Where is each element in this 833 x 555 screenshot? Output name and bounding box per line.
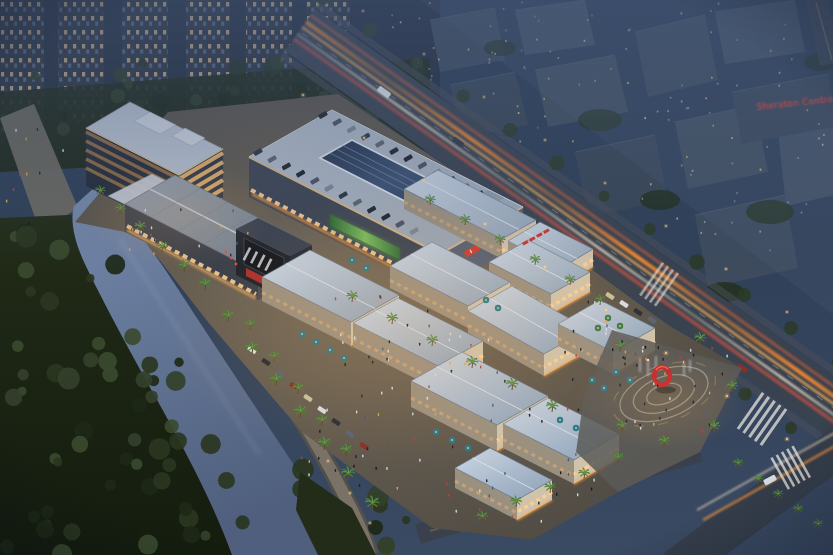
rendering-canvas: Sheraton Centre: [0, 0, 833, 555]
vignette: [0, 0, 833, 555]
scene-rendering: Sheraton Centre: [0, 0, 833, 555]
